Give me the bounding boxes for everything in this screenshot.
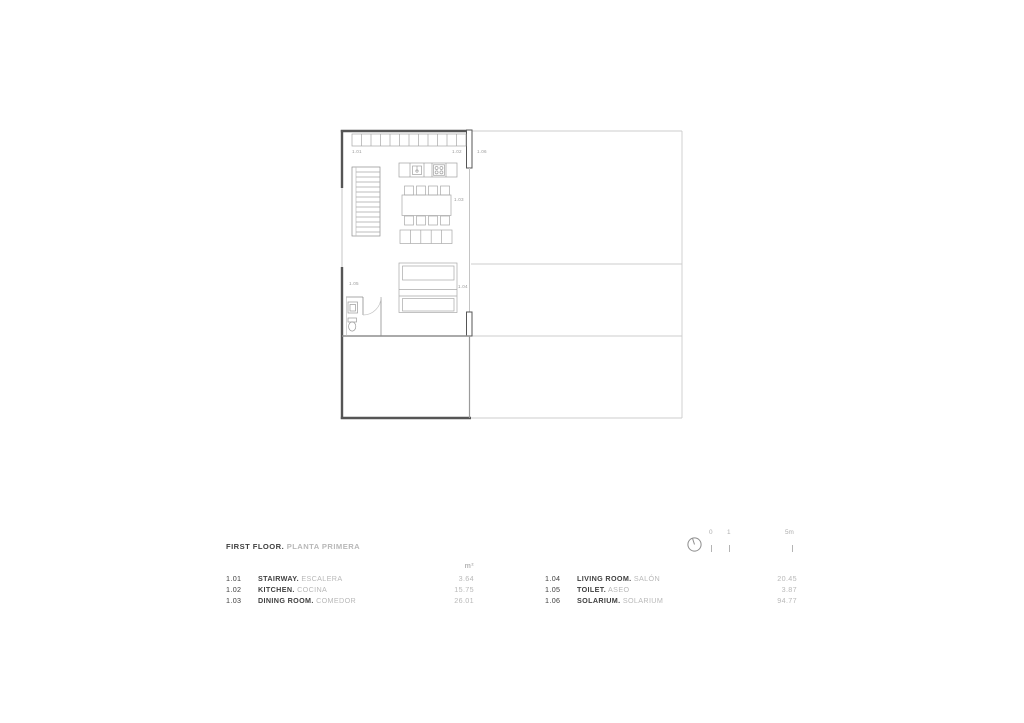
room-name-es: SALÓN [634, 574, 660, 583]
room-area: 3.64 [459, 573, 474, 584]
scale-label-1: 1 [727, 529, 731, 536]
legend-row-living: 1.04 LIVING ROOM. SALÓN 20.45 [545, 573, 797, 584]
area-unit-header: m² [226, 561, 474, 573]
room-name-en: LIVING ROOM. [577, 574, 632, 583]
room-area: 26.01 [454, 595, 474, 606]
room-name-en: STAIRWAY. [258, 574, 299, 583]
room-area: 3.87 [782, 584, 797, 595]
room-name: LIVING ROOM. SALÓN [577, 573, 777, 584]
room-name: STAIRWAY. ESCALERA [258, 573, 459, 584]
toilet-icon [348, 318, 357, 331]
room-label-dining: 1.03 [454, 197, 464, 202]
room-label-kitchen: 1.02 [452, 149, 462, 154]
room-code: 1.01 [226, 573, 258, 584]
sideboard [400, 230, 452, 244]
legend-left-column: m² 1.01 STAIRWAY. ESCALERA 3.64 1.02 KIT… [226, 561, 474, 606]
room-label-stairway: 1.01 [352, 149, 362, 154]
room-name-en: SOLARIUM. [577, 596, 620, 605]
room-label-living: 1.04 [458, 284, 468, 289]
room-name-en: KITCHEN. [258, 585, 295, 594]
legend-row-solarium: 1.06 SOLARIUM. SOLARIUM 94.77 [545, 595, 797, 606]
room-area: 15.75 [454, 584, 474, 595]
dining-table [402, 186, 451, 225]
scale-label-5m: 5m [785, 529, 794, 536]
room-label-toilet: 1.05 [349, 281, 359, 286]
wardrobe [352, 134, 466, 146]
room-code: 1.03 [226, 595, 258, 606]
room-area: 94.77 [777, 595, 797, 606]
drawing-sheet: 1.01 1.02 1.06 1.03 1.05 1.04 FIRST FLOO… [0, 0, 1024, 723]
room-name-es: COCINA [297, 585, 327, 594]
floor-plan: 1.01 1.02 1.06 1.03 1.05 1.04 [0, 0, 1024, 723]
room-name: SOLARIUM. SOLARIUM [577, 595, 777, 606]
solarium-outline [471, 131, 682, 418]
room-name-es: COMEDOR [316, 596, 356, 605]
title-block: FIRST FLOOR. PLANTA PRIMERA [226, 542, 360, 551]
room-name-en: DINING ROOM. [258, 596, 314, 605]
scale-tick [729, 545, 730, 552]
room-name: KITCHEN. COCINA [258, 584, 454, 595]
scale-bar: 0 1 5m [700, 529, 800, 555]
legend-row-toilet: 1.05 TOILET. ASEO 3.87 [545, 584, 797, 595]
floor-title-es: PLANTA PRIMERA [287, 542, 360, 551]
stairway [352, 167, 380, 236]
scale-label-0: 0 [709, 529, 713, 536]
building-walls [341, 130, 472, 419]
room-code: 1.04 [545, 573, 577, 584]
room-name-es: ESCALERA [301, 574, 342, 583]
living-room-sofas [399, 263, 457, 313]
washbasin-icon [348, 302, 358, 313]
room-area: 20.45 [777, 573, 797, 584]
room-name-es: SOLARIUM [623, 596, 663, 605]
hob-icon [434, 165, 445, 176]
floor-title-en: FIRST FLOOR. [226, 542, 284, 551]
toilet-room [346, 297, 381, 336]
legend-right-column: 1.04 LIVING ROOM. SALÓN 20.45 1.05 TOILE… [545, 561, 797, 606]
room-code: 1.06 [545, 595, 577, 606]
room-name: DINING ROOM. COMEDOR [258, 595, 454, 606]
room-label-solarium: 1.06 [477, 149, 487, 154]
room-name: TOILET. ASEO [577, 584, 782, 595]
spacer-row [545, 561, 797, 573]
legend-row-kitchen: 1.02 KITCHEN. COCINA 15.75 [226, 584, 474, 595]
room-name-es: ASEO [608, 585, 629, 594]
room-name-en: TOILET. [577, 585, 606, 594]
door-swing-arc [363, 297, 381, 315]
room-code: 1.02 [226, 584, 258, 595]
scale-tick [711, 545, 712, 552]
legend-row-dining: 1.03 DINING ROOM. COMEDOR 26.01 [226, 595, 474, 606]
room-code: 1.05 [545, 584, 577, 595]
scale-tick [792, 545, 793, 552]
kitchen-counter [399, 163, 457, 177]
legend-row-stairway: 1.01 STAIRWAY. ESCALERA 3.64 [226, 573, 474, 584]
